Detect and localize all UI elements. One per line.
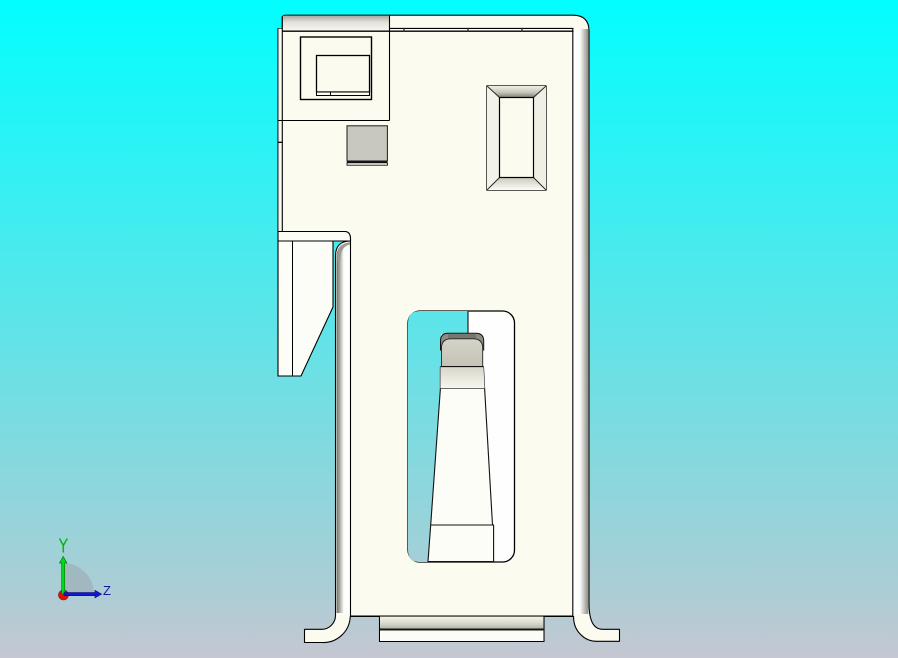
svg-text:Z: Z	[103, 583, 111, 598]
